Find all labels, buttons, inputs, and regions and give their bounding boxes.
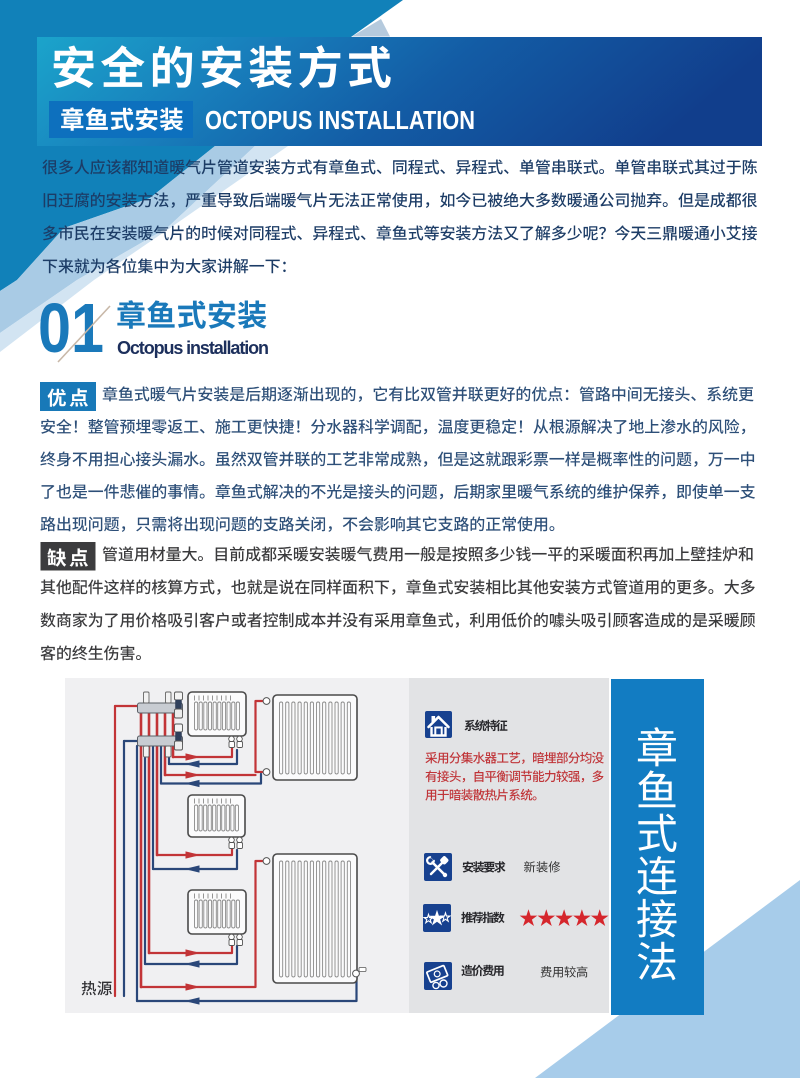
svg-text:Octopus installation: Octopus installation [117, 338, 269, 358]
svg-text:OCTOPUS INSTALLATION: OCTOPUS INSTALLATION [205, 105, 475, 135]
svg-text:01: 01 [38, 289, 104, 367]
